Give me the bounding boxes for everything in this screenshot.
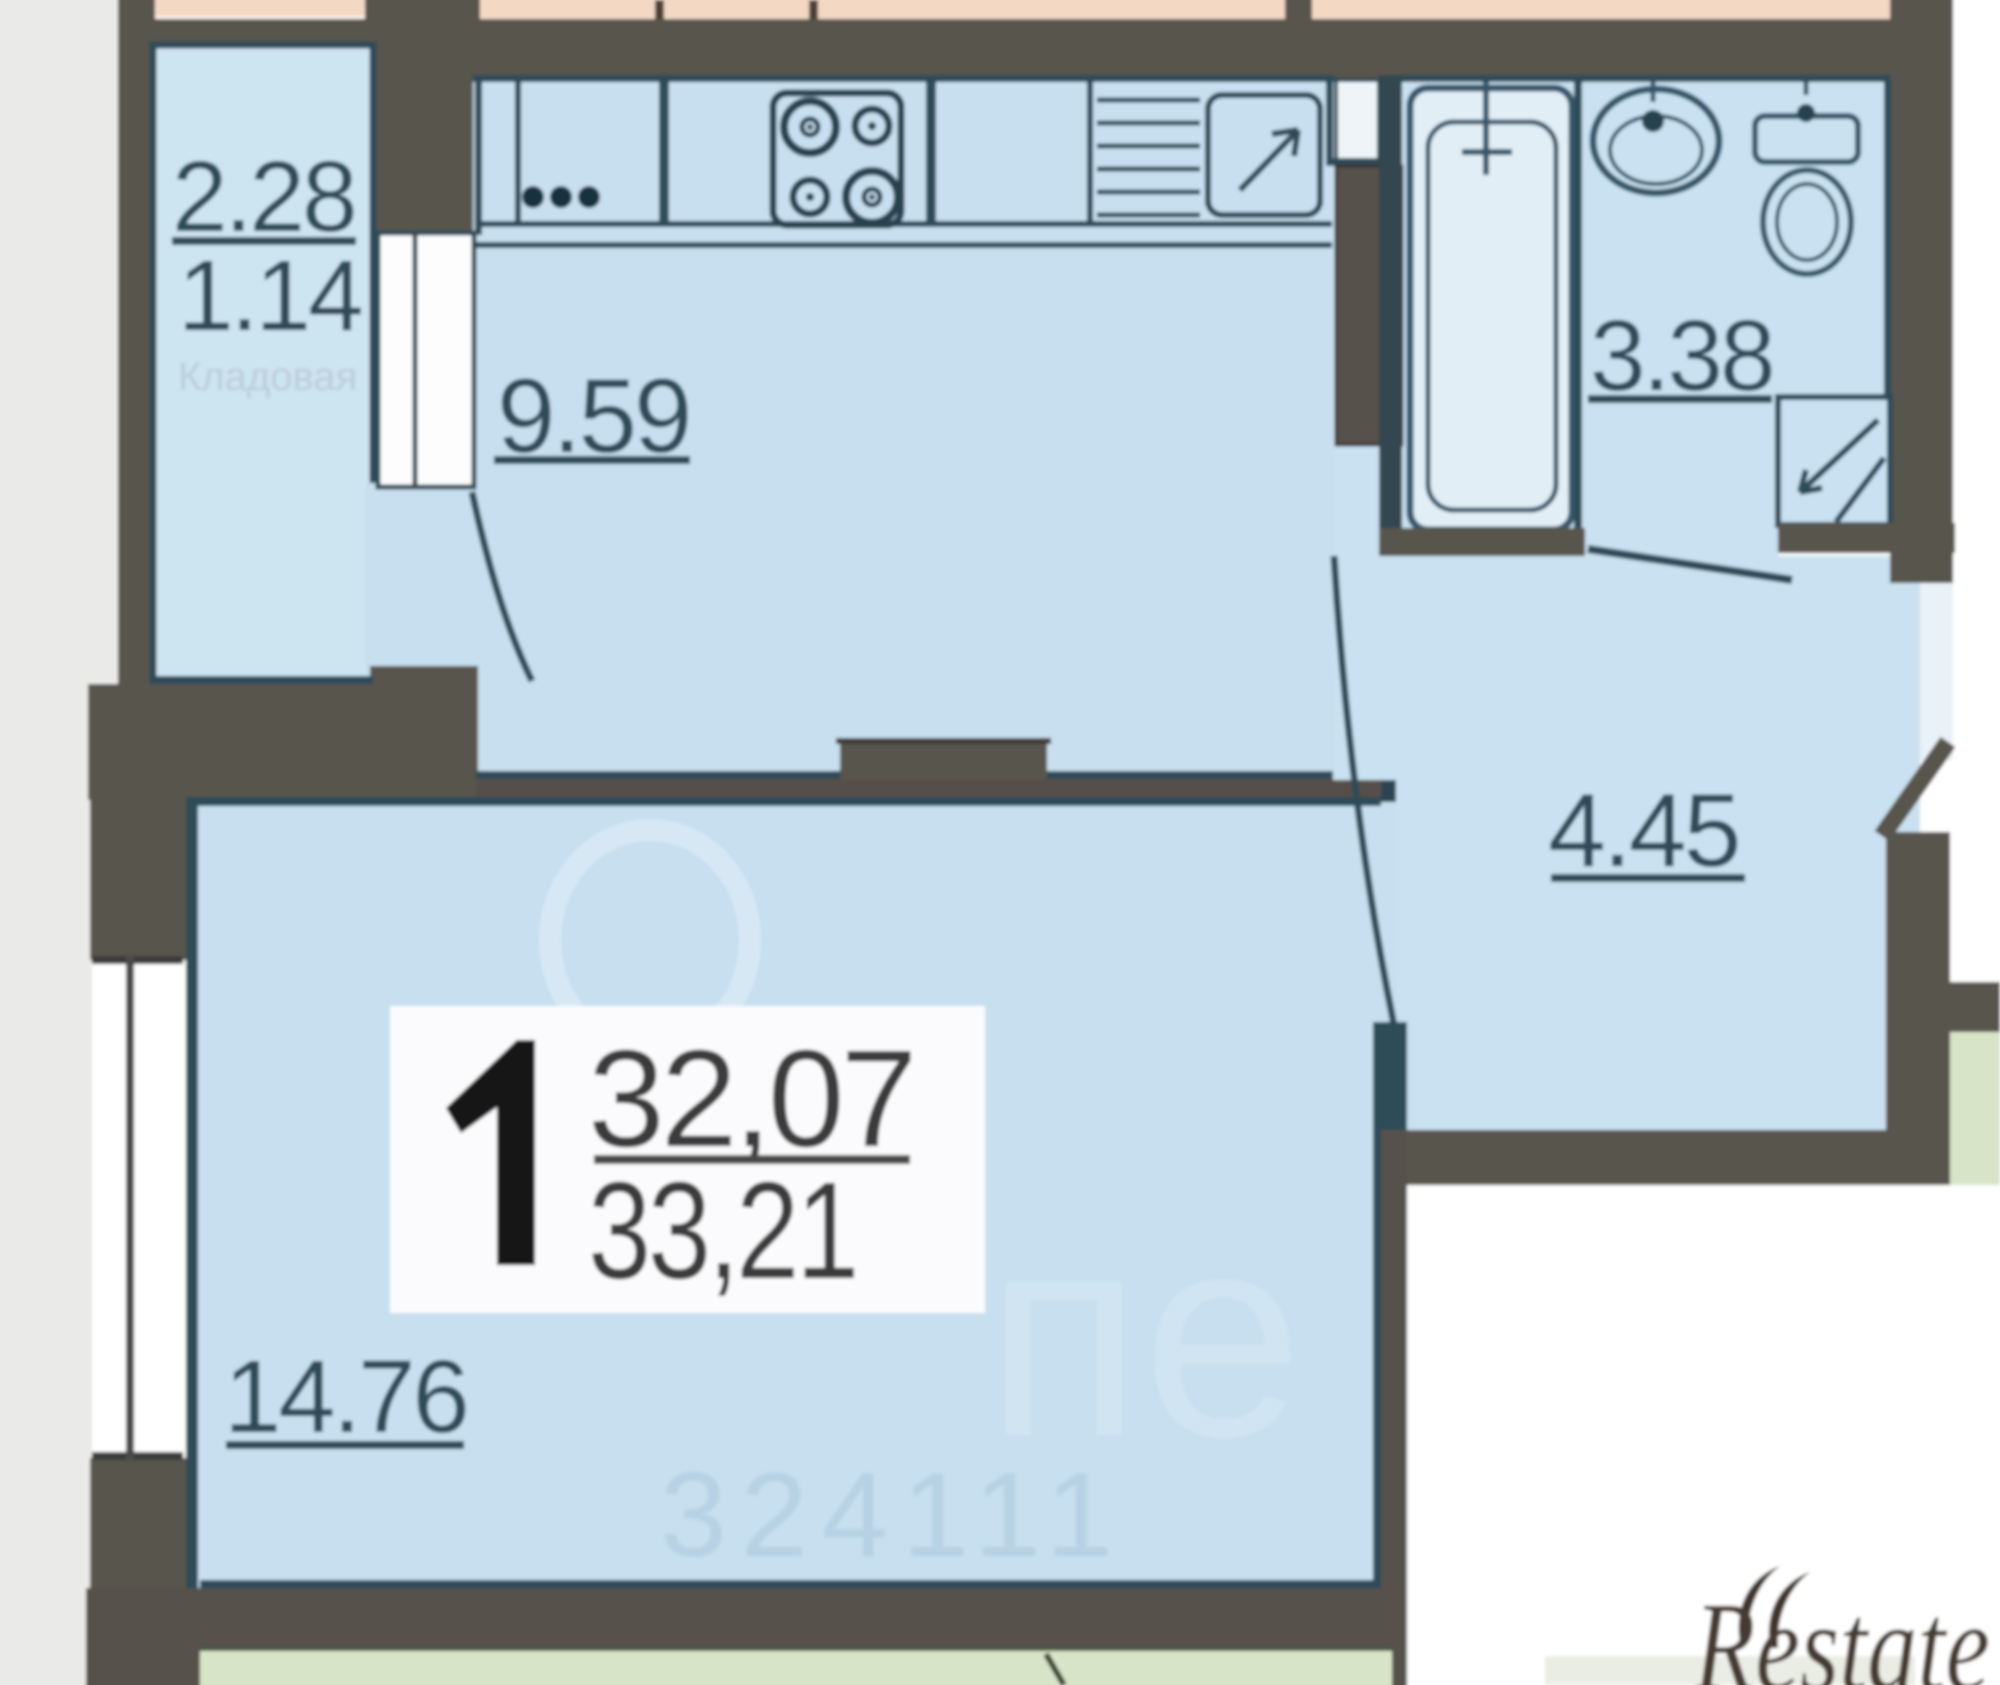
svg-text:4.45: 4.45 bbox=[1548, 773, 1738, 889]
svg-text:14.76: 14.76 bbox=[224, 1339, 467, 1454]
svg-text:Restate: Restate bbox=[1693, 1576, 1990, 1685]
svg-text:1.14: 1.14 bbox=[178, 240, 361, 352]
svg-text:пе: пе bbox=[985, 1173, 1303, 1497]
svg-text:2.28: 2.28 bbox=[172, 141, 355, 253]
svg-text:33,21: 33,21 bbox=[588, 1154, 856, 1308]
svg-text:Кладовая: Кладовая bbox=[178, 355, 357, 399]
svg-text:32,07: 32,07 bbox=[588, 1022, 913, 1176]
